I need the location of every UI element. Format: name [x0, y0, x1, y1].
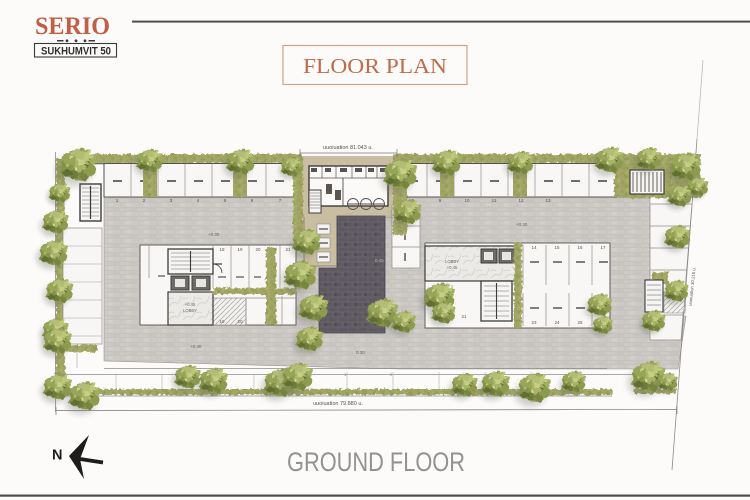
svg-text:13: 13 [545, 198, 551, 203]
svg-text:18: 18 [219, 247, 225, 252]
svg-text:LOBBY: LOBBY [183, 308, 197, 313]
svg-text:19: 19 [237, 247, 243, 252]
svg-text:14: 14 [531, 245, 537, 250]
svg-text:+0.45: +0.45 [185, 302, 196, 307]
svg-text:20: 20 [255, 247, 261, 252]
svg-text:+0.30: +0.30 [208, 232, 220, 237]
svg-text:N: N [52, 448, 62, 464]
svg-text:LOBBY: LOBBY [445, 259, 459, 264]
svg-text:17: 17 [600, 245, 606, 250]
svg-text:+0.30: +0.30 [516, 222, 528, 227]
svg-text:10: 10 [464, 198, 470, 203]
svg-text:19: 19 [219, 319, 225, 324]
svg-text:11: 11 [492, 198, 497, 203]
svg-text:23: 23 [531, 320, 537, 325]
svg-text:+0.45: +0.45 [447, 265, 458, 270]
svg-text:25: 25 [577, 320, 583, 325]
svg-text:12: 12 [518, 198, 524, 203]
svg-text:0.30: 0.30 [356, 350, 365, 355]
svg-text:+0.30: +0.30 [190, 344, 202, 349]
svg-text:SUKHUMVIT 50: SUKHUMVIT 50 [41, 45, 111, 57]
svg-text:uuoiuation 81.043 u.: uuoiuation 81.043 u. [323, 145, 373, 151]
svg-text:SERIO: SERIO [35, 13, 110, 40]
svg-text:GROUND FLOOR: GROUND FLOOR [287, 447, 465, 477]
svg-text:16: 16 [577, 245, 583, 250]
svg-text:0.45: 0.45 [375, 258, 384, 263]
svg-text:······: ······ [346, 212, 353, 216]
svg-text:15: 15 [554, 245, 560, 250]
svg-text:20: 20 [237, 319, 243, 324]
svg-text:uuoiuation 79.880 u.: uuoiuation 79.880 u. [313, 401, 363, 407]
svg-text:FLOOR PLAN: FLOOR PLAN [303, 54, 448, 78]
svg-text:24: 24 [554, 320, 560, 325]
svg-text:21: 21 [461, 314, 467, 319]
